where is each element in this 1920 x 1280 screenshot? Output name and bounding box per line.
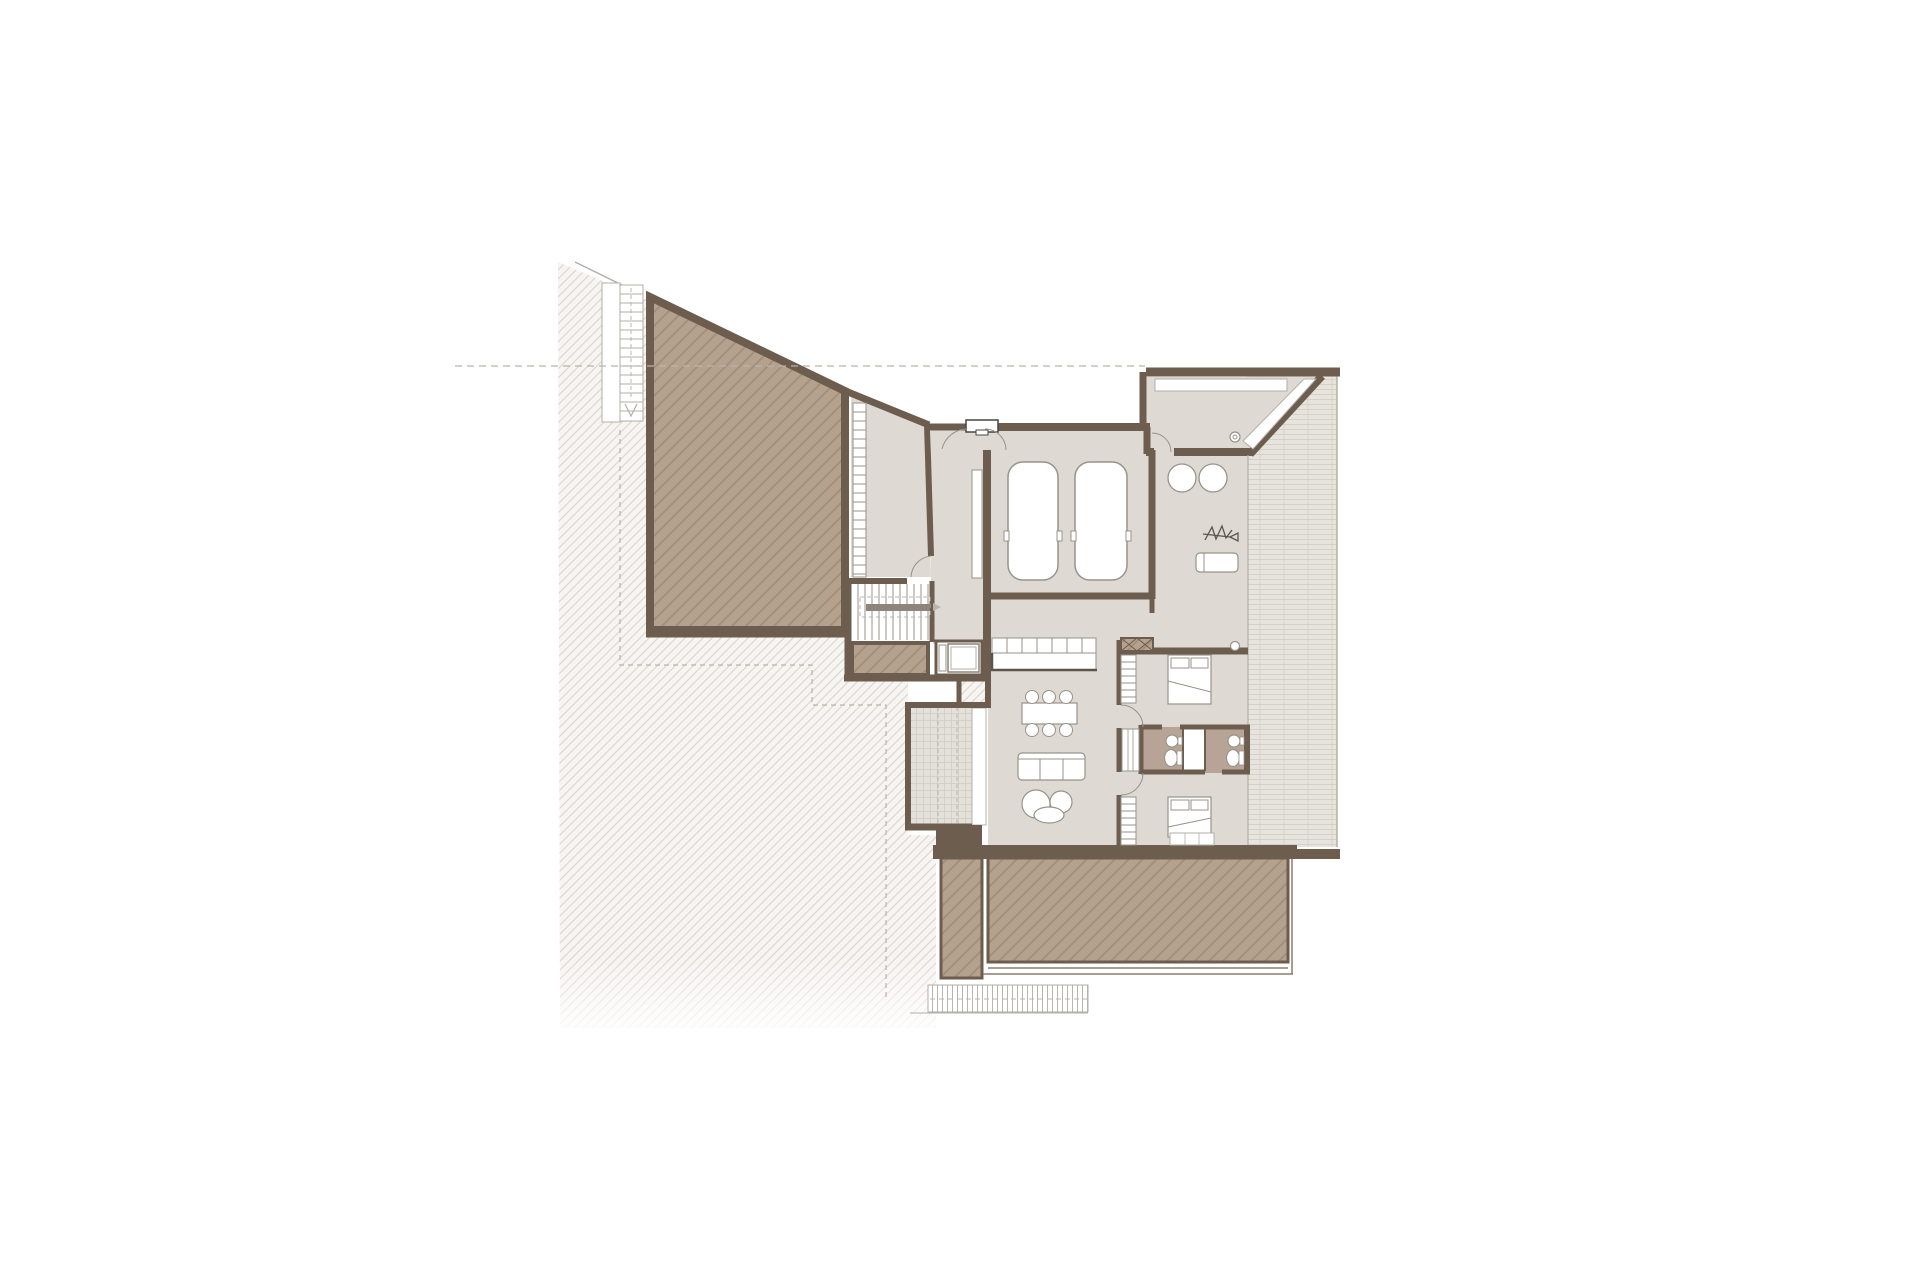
deck-drain: [1231, 642, 1240, 651]
garage-car-2: [1075, 462, 1127, 580]
bathA-sink-tap: [1178, 737, 1182, 745]
corridor-right-wall: [927, 424, 931, 556]
entry-door-handle: [976, 430, 988, 435]
garage-car-1: [1008, 462, 1058, 580]
dining-chair-6: [1060, 724, 1073, 737]
bathroom-b-floor: [1205, 727, 1246, 773]
garage-roof-hatched: [650, 297, 845, 630]
car2-mirror-right: [1126, 531, 1131, 541]
dining-chair-3: [1060, 691, 1073, 704]
terrace-south-strip: [941, 858, 982, 978]
bathA-toilet-tank: [1177, 751, 1182, 765]
closet-bath-side: [1122, 729, 1139, 771]
sofa: [1018, 753, 1085, 780]
kitchen-cabinets: [992, 638, 1096, 653]
bathB-toilet-tank: [1239, 751, 1244, 765]
south-wall-band: [933, 845, 1297, 859]
bathB-sink: [1228, 735, 1240, 747]
elevator-door: [939, 645, 946, 671]
wellness-basin-1: [1168, 464, 1196, 492]
corridor-shelf: [853, 403, 866, 577]
understair-closet: [852, 643, 928, 675]
hall-wardrobe: [972, 470, 982, 578]
terrace-south-main: [988, 858, 1288, 962]
car1-mirror-right: [1057, 531, 1062, 541]
bathroom-a-floor: [1142, 727, 1183, 773]
kitchen-counter: [992, 653, 1096, 670]
car1-mirror-left: [1004, 531, 1009, 541]
shower-room-floor: [1183, 728, 1205, 772]
terrace-west-tiles: [908, 705, 972, 827]
dining-chair-5: [1043, 724, 1056, 737]
utility-window-top: [1155, 379, 1287, 391]
retaining-strip: [602, 283, 620, 422]
coffee-table: [1034, 807, 1064, 823]
bathA-sink: [1166, 735, 1178, 747]
dining-chair-1: [1026, 691, 1039, 704]
wellness-basin-2: [1199, 464, 1227, 492]
south-wall-band-east: [1297, 849, 1340, 859]
lounger: [1196, 553, 1238, 572]
bathB-sink-tap: [1240, 737, 1244, 745]
elevator-car: [948, 644, 979, 672]
floor-plan-canvas: [0, 0, 1920, 1280]
hall-wardrobe-crossed: [1121, 638, 1153, 651]
floor-plan-page: [0, 0, 1920, 1280]
floor-drain: [1230, 432, 1240, 442]
dining-table: [1022, 703, 1077, 724]
main-stair-handrail: [866, 604, 930, 611]
terrace-window-band: [972, 708, 986, 825]
dining-chair-2: [1043, 691, 1056, 704]
car2-mirror-left: [1071, 531, 1076, 541]
bathA-toilet: [1165, 750, 1178, 767]
lightwell-hatch: [959, 680, 988, 704]
southwest-wall-stub: [936, 825, 982, 847]
dining-chair-4: [1026, 724, 1039, 737]
bedroom2-window: [1170, 833, 1214, 845]
bathB-toilet: [1227, 750, 1240, 767]
